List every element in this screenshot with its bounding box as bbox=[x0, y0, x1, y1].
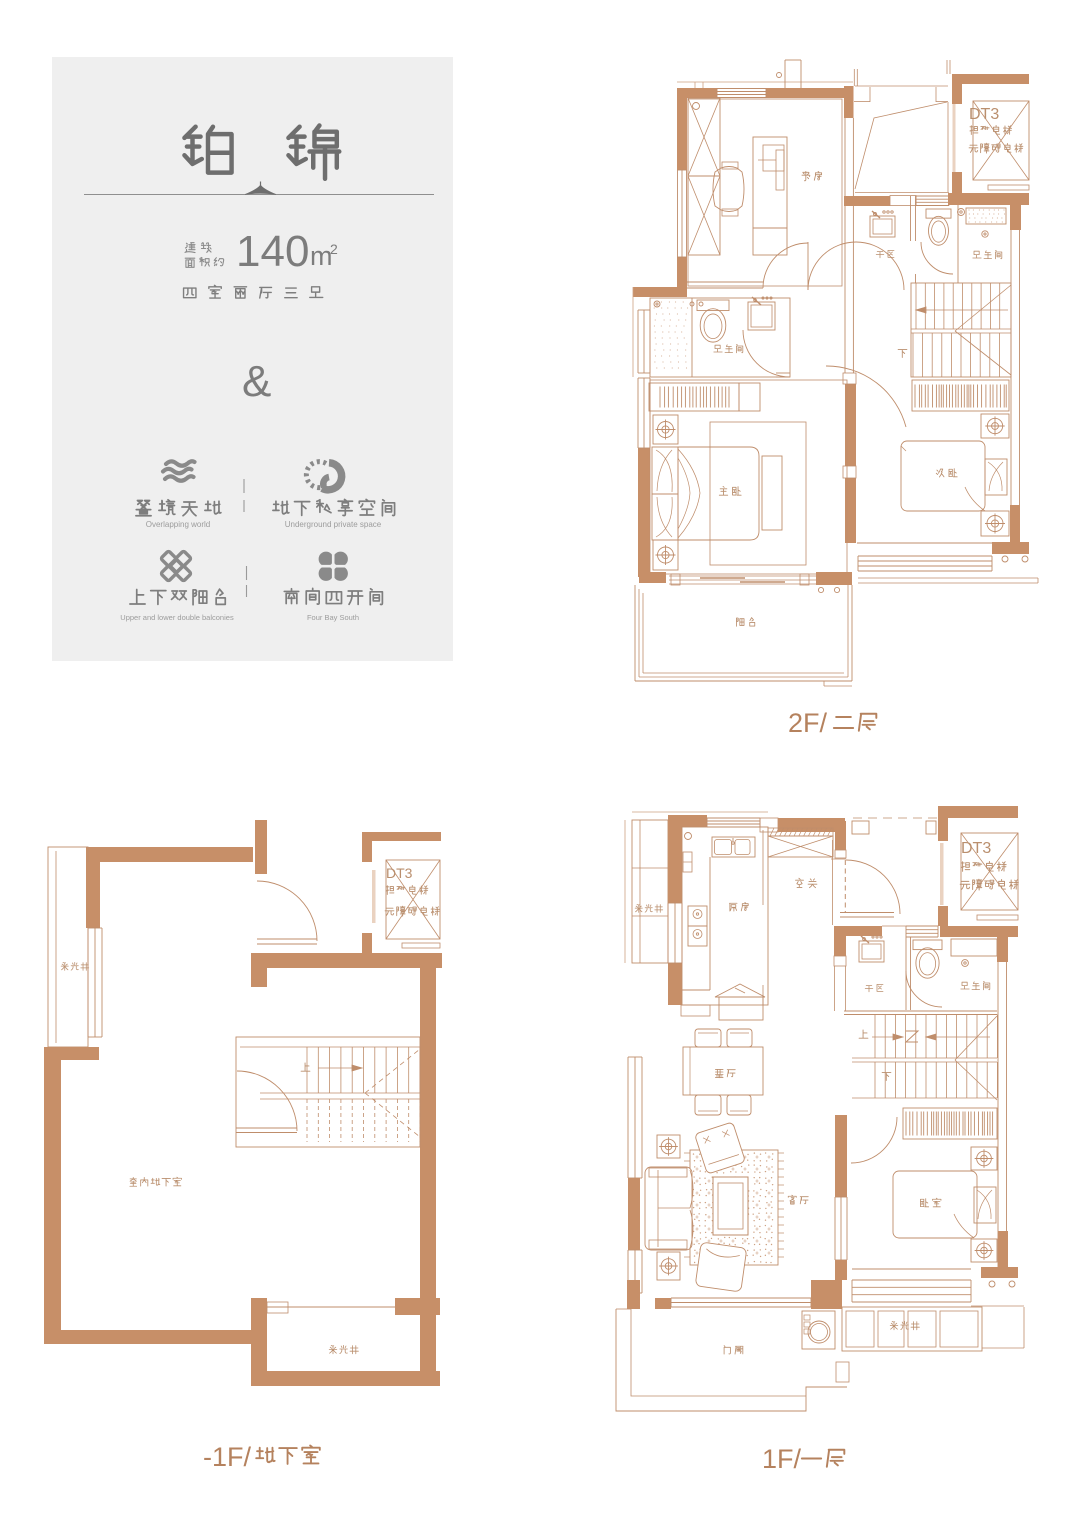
svg-text:-1F/: -1F/ bbox=[203, 1442, 252, 1472]
svg-text:&: & bbox=[242, 357, 271, 406]
svg-text:2: 2 bbox=[330, 241, 338, 257]
svg-text:Overlapping world: Overlapping world bbox=[146, 520, 210, 529]
svg-text:1F/: 1F/ bbox=[762, 1444, 802, 1474]
svg-text:Four Bay South: Four Bay South bbox=[307, 613, 359, 622]
svg-text:DT3: DT3 bbox=[961, 840, 991, 857]
svg-text:DT3: DT3 bbox=[386, 865, 413, 881]
svg-text:140: 140 bbox=[236, 227, 309, 276]
svg-text:2F/: 2F/ bbox=[788, 708, 828, 738]
svg-text:DT3: DT3 bbox=[969, 106, 999, 123]
svg-text:Upper and lower double balconi: Upper and lower double balconies bbox=[120, 613, 234, 622]
svg-text:Underground private space: Underground private space bbox=[285, 520, 382, 529]
